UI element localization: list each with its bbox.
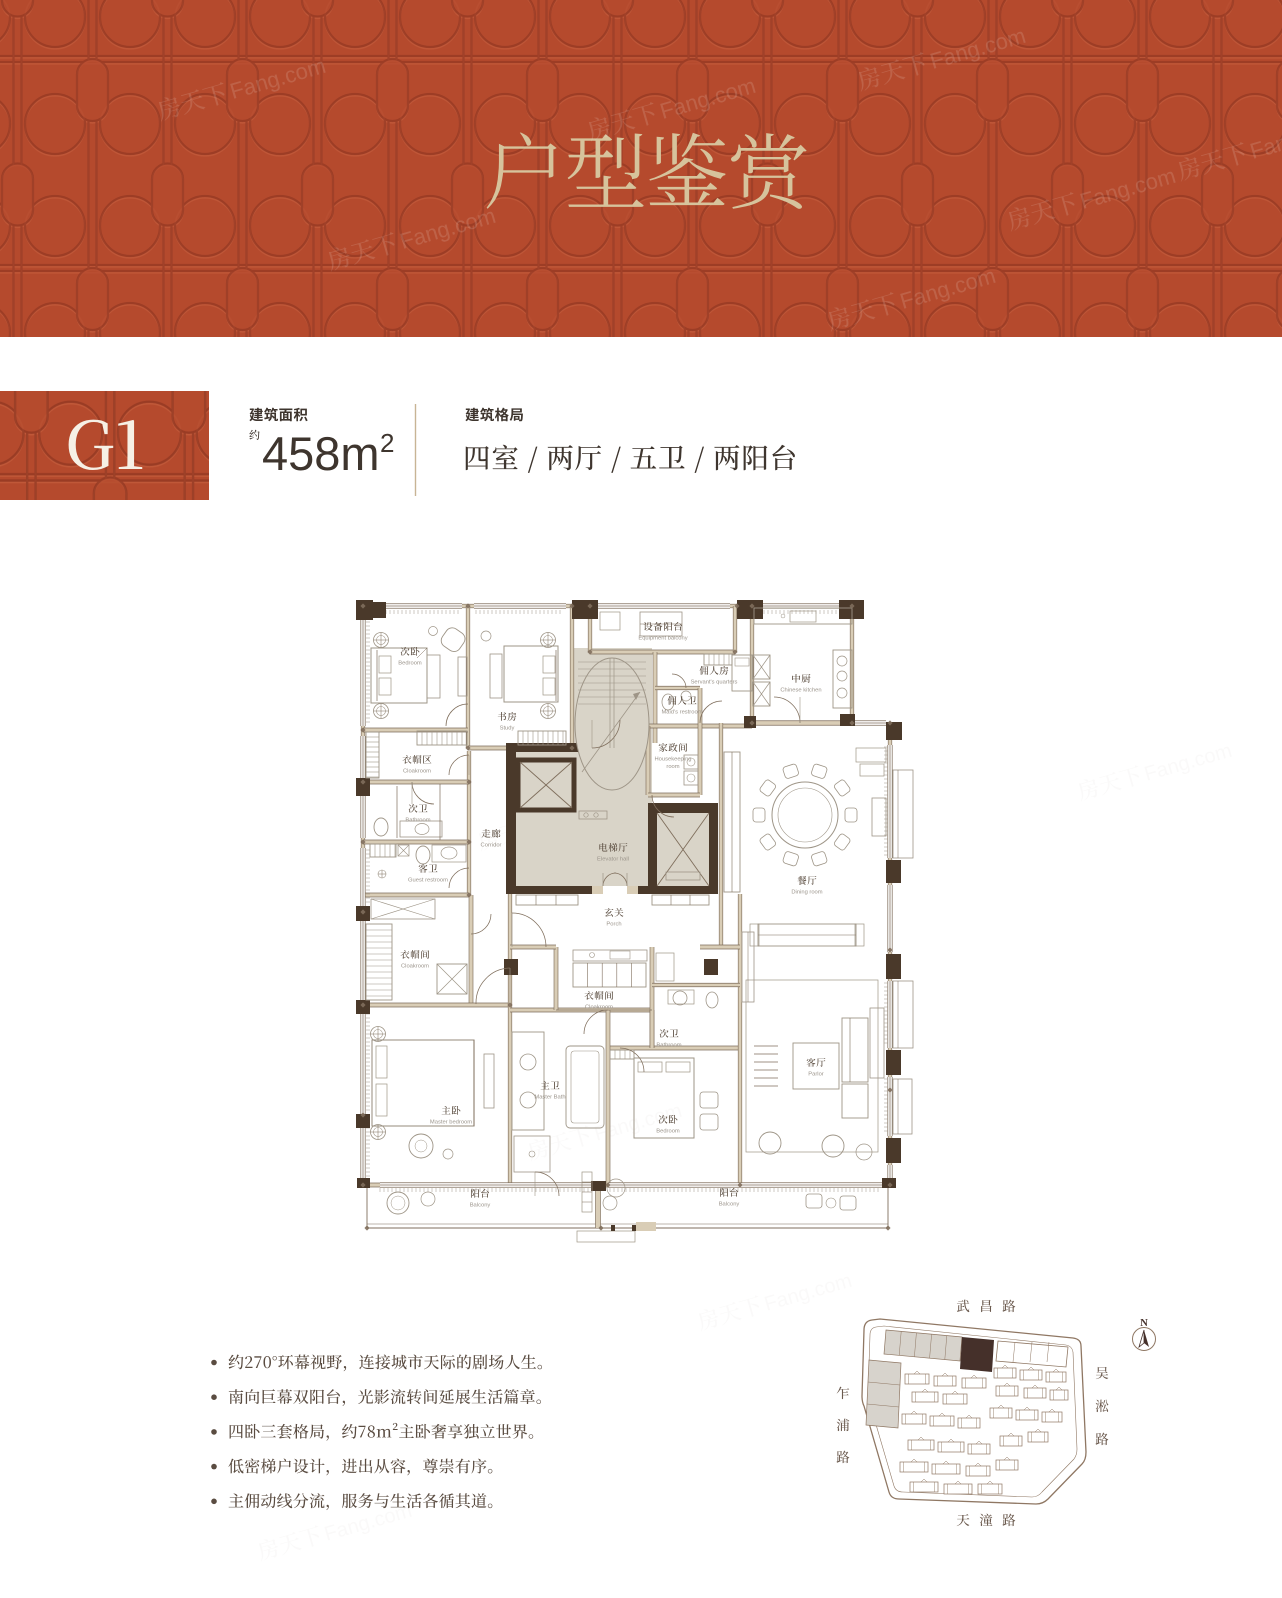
svg-text:Bathroom: Bathroom	[405, 818, 430, 824]
svg-text:room: room	[666, 764, 679, 770]
svg-text:Bedroom: Bedroom	[398, 661, 422, 667]
svg-text:Study: Study	[500, 726, 515, 732]
svg-text:Cloakroom: Cloakroom	[403, 769, 431, 775]
svg-text:Guest restroom: Guest restroom	[408, 878, 448, 884]
svg-text:Elevator hall: Elevator hall	[597, 857, 629, 863]
svg-text:Porch: Porch	[606, 922, 621, 928]
svg-text:Cloakroom: Cloakroom	[585, 1005, 613, 1011]
svg-text:Chinese kitchen: Chinese kitchen	[780, 688, 821, 694]
svg-text:Maid's restroom: Maid's restroom	[661, 710, 702, 716]
svg-text:Corridor: Corridor	[481, 843, 502, 849]
svg-text:Servant's quarters: Servant's quarters	[691, 680, 738, 686]
svg-text:Bedroom: Bedroom	[656, 1129, 680, 1135]
svg-text:2: 2	[380, 428, 394, 458]
svg-text:Master bedroom: Master bedroom	[430, 1120, 472, 1126]
svg-text:Equipment balcony: Equipment balcony	[638, 636, 687, 642]
svg-text:Dining room: Dining room	[791, 890, 822, 896]
svg-text:Balcony: Balcony	[470, 1203, 491, 1209]
svg-text:Master Bath: Master Bath	[534, 1095, 565, 1101]
svg-text:Housekeeping: Housekeeping	[654, 757, 691, 763]
svg-text:Cloakroom: Cloakroom	[401, 964, 429, 970]
svg-text:458m: 458m	[262, 427, 380, 480]
svg-text:Parlor: Parlor	[808, 1072, 824, 1078]
svg-text:N: N	[1140, 1318, 1148, 1329]
svg-text:Bathroom: Bathroom	[656, 1043, 681, 1049]
svg-text:Balcony: Balcony	[719, 1202, 740, 1208]
